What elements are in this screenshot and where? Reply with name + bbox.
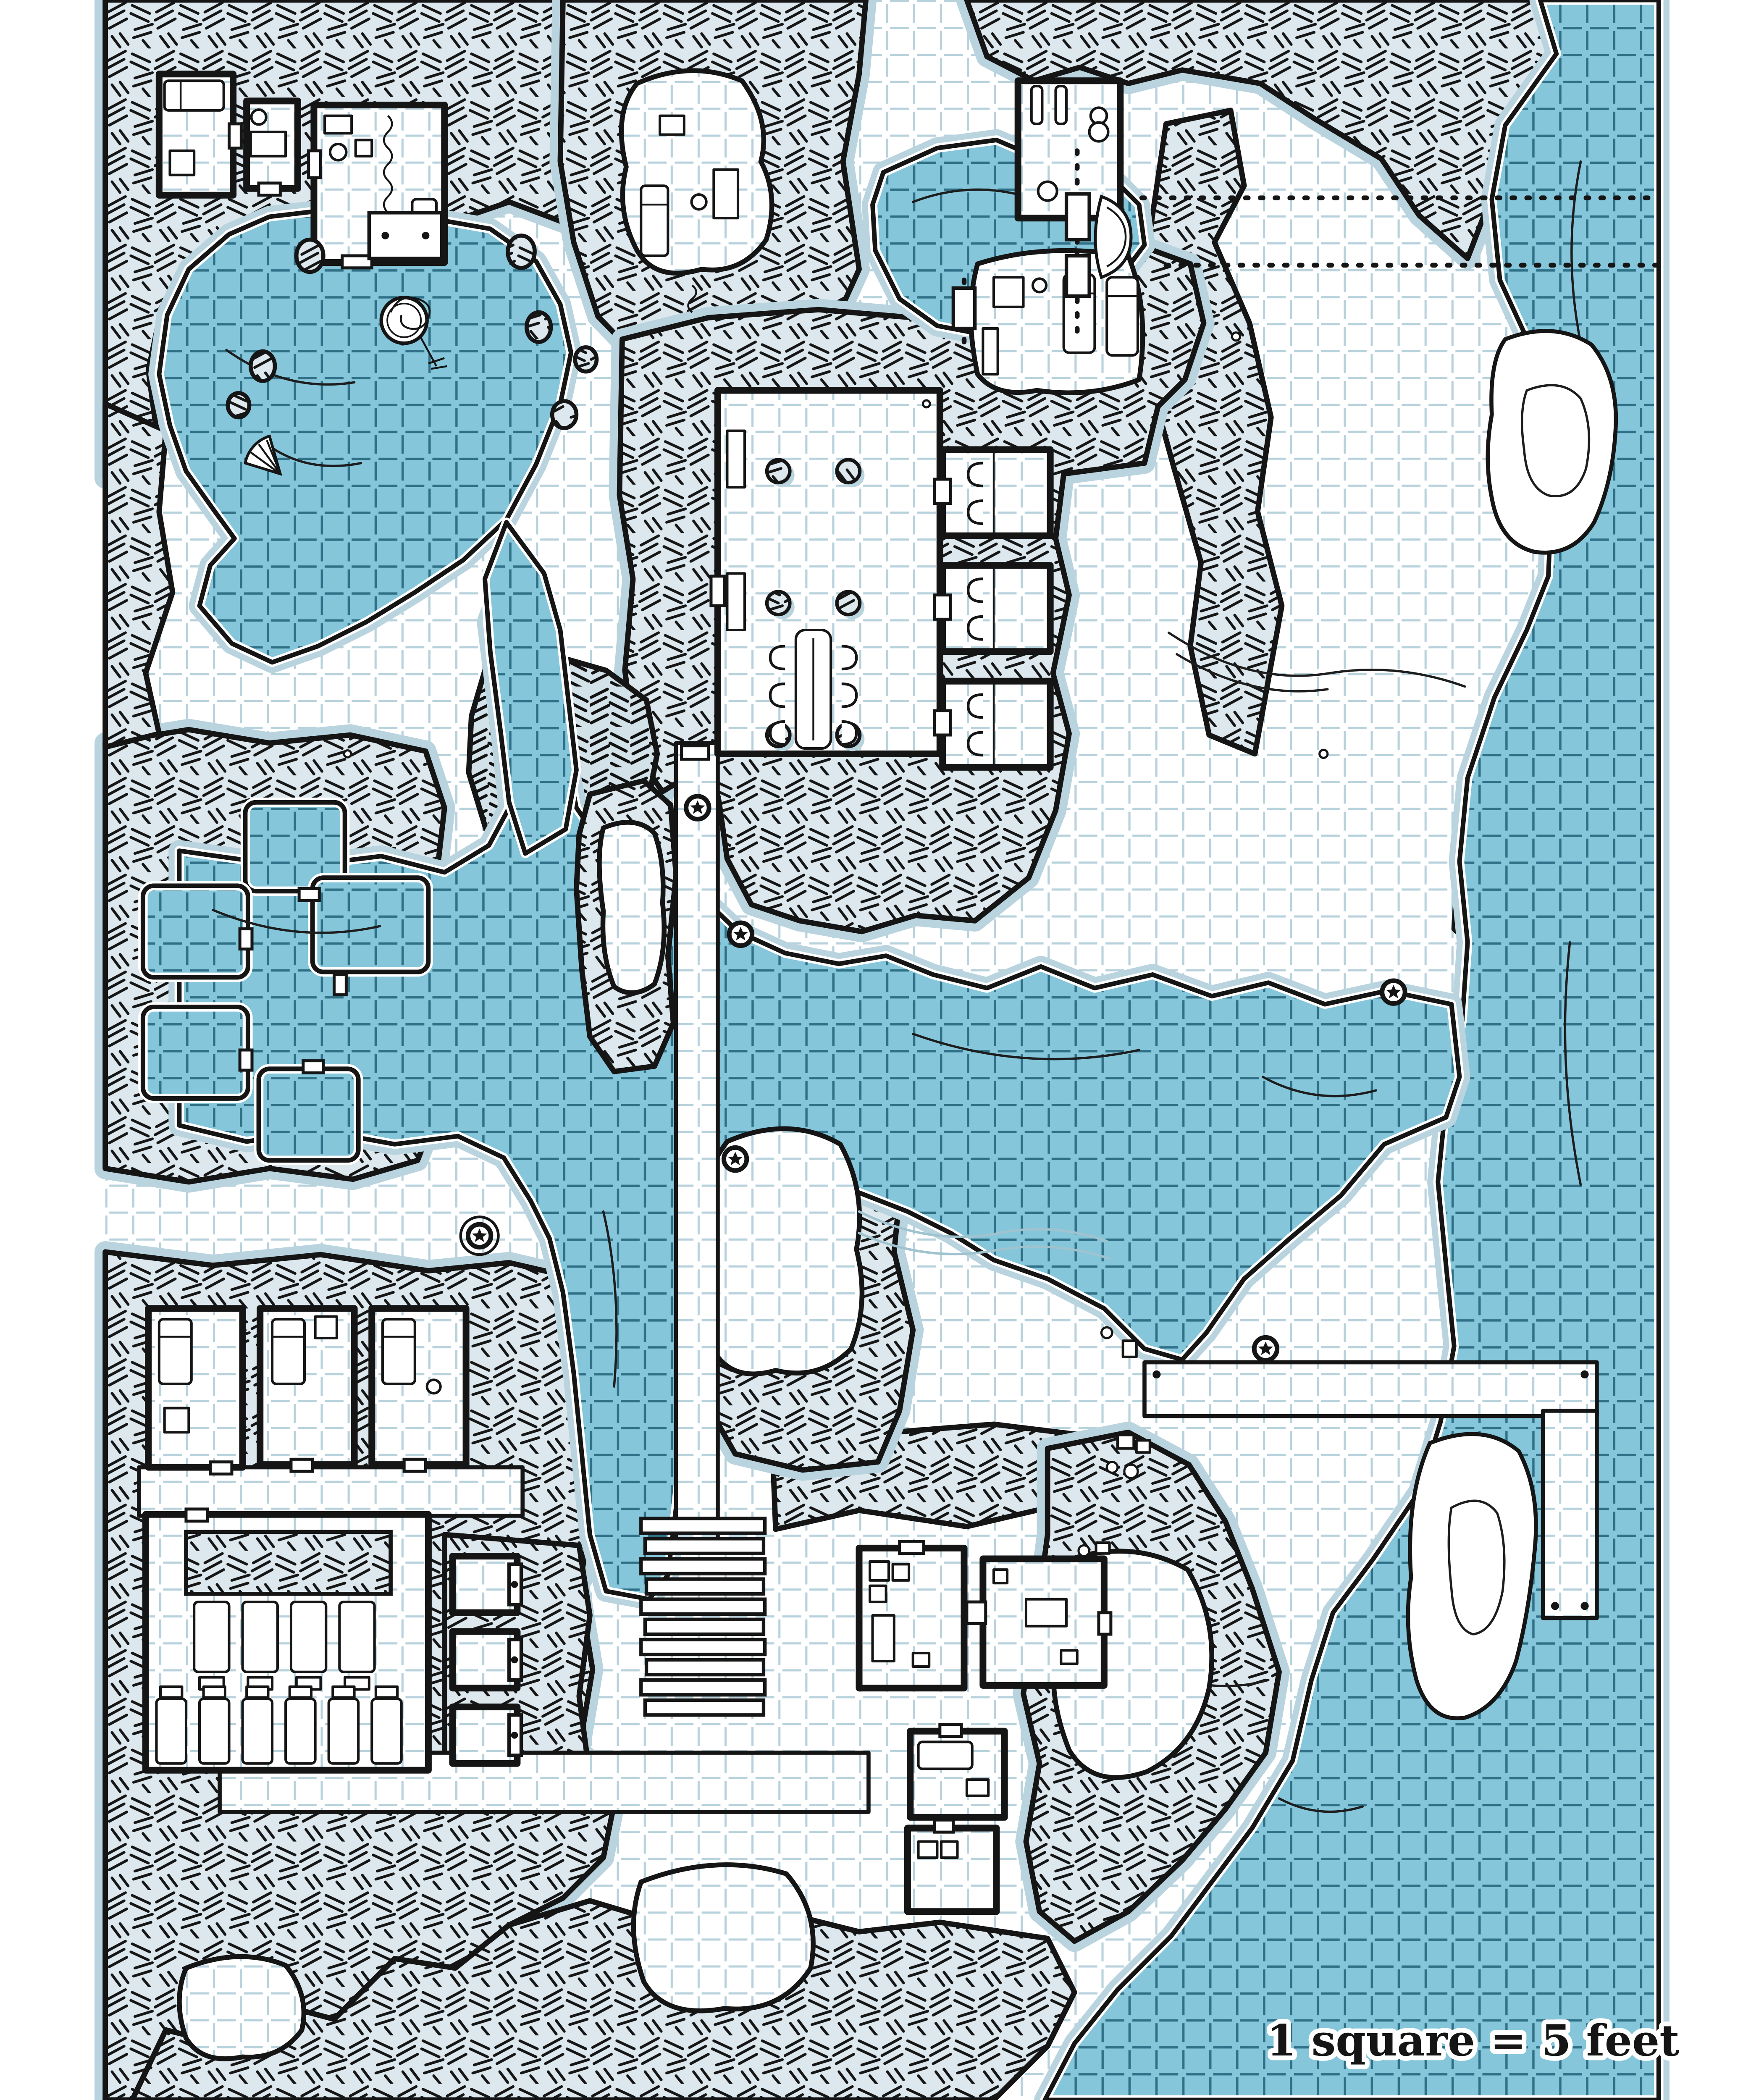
dungeon-map: 1 square = 5 feet (0, 0, 1764, 2100)
storage-room-2 (967, 1559, 1111, 1685)
quarters-room-1 (159, 74, 241, 195)
star-marker (686, 796, 709, 819)
south-room-1 (910, 1725, 1004, 1817)
scale-label: 1 square = 5 feet (1266, 2016, 1679, 2066)
south-room-2 (908, 1820, 997, 1911)
channel-islet (576, 781, 676, 1071)
wooden-bridge (369, 213, 442, 258)
chest-icon (1089, 108, 1108, 141)
great-hall (681, 390, 940, 759)
barracks-hall (146, 1509, 428, 1770)
barracks-room-2 (260, 1308, 354, 1471)
plank-bridge (1066, 194, 1089, 240)
star-marker (1254, 1337, 1277, 1360)
storage-room-1 (859, 1541, 964, 1688)
long-table (796, 630, 831, 748)
barracks-room-3 (372, 1308, 466, 1471)
side-cells (934, 450, 1050, 767)
star-marker (729, 923, 752, 945)
prison-cells (453, 1556, 521, 1764)
star-marker (724, 1147, 746, 1170)
quarters-room-2 (247, 101, 298, 195)
star-marker (468, 1224, 491, 1247)
barracks-room-1 (148, 1308, 242, 1474)
star-marker (1382, 981, 1405, 1003)
stone-causeway (676, 743, 718, 1551)
